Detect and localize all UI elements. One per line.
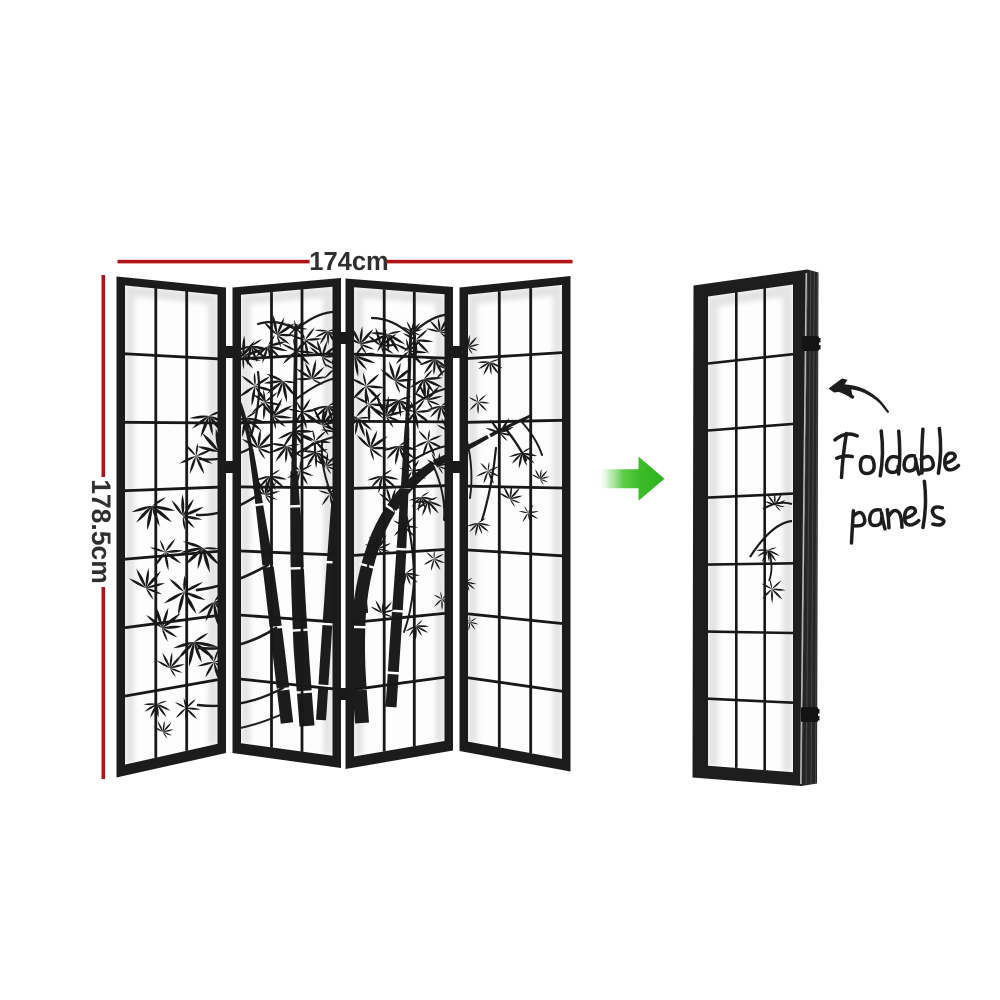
svg-text:174cm: 174cm <box>309 248 388 276</box>
svg-text:178.5cm: 178.5cm <box>86 479 116 584</box>
